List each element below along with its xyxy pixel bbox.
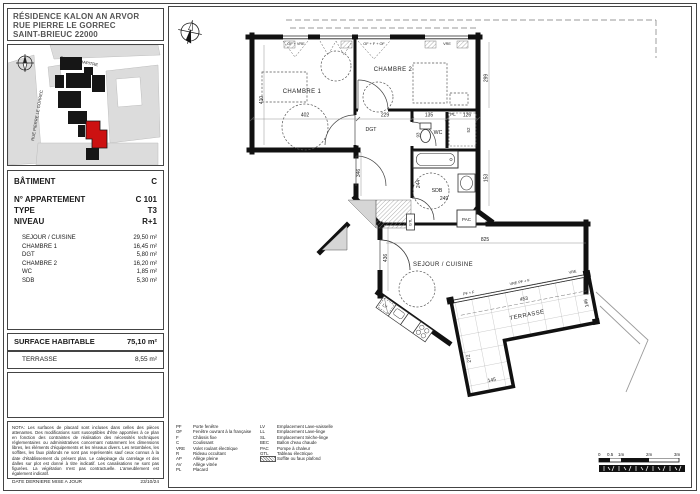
scale-1m: 1m bbox=[618, 452, 624, 457]
apartment-info-panel: BÂTIMENTC N° APPARTEMENTC 101 TYPET3 NIV… bbox=[7, 170, 164, 330]
nota-text: NOTA: Les surfaces de placard sont inclu… bbox=[12, 425, 159, 476]
type-label: TYPE bbox=[14, 205, 35, 216]
legend-label: Placard bbox=[193, 467, 208, 472]
sejour-circle bbox=[399, 271, 435, 307]
surface-label: SURFACE HABITABLE bbox=[14, 337, 95, 346]
legend-abbr: PL bbox=[176, 467, 193, 472]
room-name: DGT bbox=[22, 251, 35, 260]
room-area-row: SDB5,30 m² bbox=[14, 277, 157, 286]
empty-panel bbox=[7, 372, 164, 418]
date-value: 23/10/24 bbox=[140, 480, 159, 485]
chambre1-label: CHAMBRE 1 bbox=[283, 89, 322, 95]
room-area: 1,85 m² bbox=[137, 268, 157, 277]
room-name: CHAMBRE 1 bbox=[22, 243, 57, 252]
room-name: SDB bbox=[22, 277, 34, 286]
dgt-label: DGT bbox=[366, 127, 378, 133]
window-label: OF + VRE bbox=[287, 42, 305, 46]
room-area: 16,45 m² bbox=[133, 243, 157, 252]
room-area: 5,30 m² bbox=[137, 277, 157, 286]
gtl-label: GTL bbox=[409, 219, 413, 226]
dim: 52 bbox=[466, 127, 471, 133]
niveau-value: R+1 bbox=[142, 216, 157, 227]
project-title-block: RÉSIDENCE KALON AN ARVOR RUE PIERRE LE G… bbox=[7, 8, 164, 41]
room-area-row: SEJOUR / CUISINE29,50 m² bbox=[14, 234, 157, 243]
soffite-hatch-swatch bbox=[260, 456, 276, 462]
dim: 436 bbox=[383, 254, 389, 263]
legend-col-1: PFPorte fenêtre OFFenêtre ouvrant à la f… bbox=[176, 424, 256, 473]
soffite-hatch bbox=[322, 200, 411, 250]
dim: 825 bbox=[481, 237, 490, 243]
chambre1-furniture bbox=[262, 51, 351, 150]
residence-name: RÉSIDENCE KALON AN ARVOR bbox=[13, 12, 158, 21]
terrasse-label: TERRASSE bbox=[22, 356, 57, 363]
window-label: VRE PF + F bbox=[509, 278, 530, 286]
batiment-label: BÂTIMENT bbox=[14, 176, 55, 187]
dim: 93 bbox=[416, 132, 421, 138]
apartment-value: C 101 bbox=[136, 194, 157, 205]
compass-icon bbox=[176, 18, 204, 46]
dim: 299 bbox=[484, 74, 490, 83]
dim: 402 bbox=[301, 113, 310, 119]
apartment-label: N° APPARTEMENT bbox=[14, 194, 85, 205]
chambre2-label: CHAMBRE 2 bbox=[374, 67, 413, 73]
scale-bar-graphic bbox=[598, 458, 690, 478]
parcel bbox=[116, 77, 142, 107]
legend-label: Soffite ou faux plafond bbox=[277, 456, 321, 463]
dim: 249 bbox=[440, 196, 449, 202]
room-area: 16,20 m² bbox=[133, 260, 157, 269]
city-postcode: SAINT-BRIEUC 22000 bbox=[13, 30, 158, 39]
site-map: RUE DU CHAPITRE RUE PIERRE LE GORREC bbox=[7, 44, 164, 166]
batiment-value: C bbox=[151, 176, 157, 187]
room-area-row: CHAMBRE 216,20 m² bbox=[14, 260, 157, 269]
dim: 244 bbox=[416, 180, 422, 189]
sejour-label: SEJOUR / CUISINE bbox=[413, 262, 473, 268]
kitchen-counter: LV bbox=[376, 296, 433, 342]
room-area: 5,80 m² bbox=[137, 251, 157, 260]
room-area-row: WC1,85 m² bbox=[14, 268, 157, 277]
terrasse-value: 8,55 m² bbox=[135, 356, 157, 363]
scale-05: 0.5 bbox=[607, 452, 613, 457]
terrasse-panel: TERRASSE8,55 m² bbox=[7, 351, 164, 369]
room-area-row: CHAMBRE 116,45 m² bbox=[14, 243, 157, 252]
nota-panel: NOTA: Les surfaces de placard sont inclu… bbox=[7, 421, 164, 479]
wc-toilet bbox=[420, 123, 431, 143]
scale-2m: 2m bbox=[646, 452, 652, 457]
surface-value: 75,10 m² bbox=[127, 337, 157, 346]
wc-label: WC bbox=[434, 130, 443, 136]
scale-bar: 0 0.5 1m 2m 3m bbox=[598, 452, 690, 478]
neighbor-outline bbox=[596, 292, 648, 392]
room-name: CHAMBRE 2 bbox=[22, 260, 57, 269]
sdb-label: SDB bbox=[432, 188, 443, 194]
terrace: 453 TERRASSE 146 272 145 PF + F VRE PF +… bbox=[446, 267, 609, 396]
dim: 410 bbox=[259, 96, 265, 105]
surface-habitable-panel: SURFACE HABITABLE75,10 m² bbox=[7, 333, 164, 351]
dim: 229 bbox=[381, 113, 390, 119]
type-value: T3 bbox=[148, 205, 157, 216]
window-label: VRE bbox=[443, 42, 451, 46]
legend-col-2: LVEmplacement Lave-vaisselle LLEmplaceme… bbox=[260, 424, 360, 464]
pac-label: PAC bbox=[462, 217, 472, 222]
room-name: WC bbox=[22, 268, 32, 277]
window-label: VRE bbox=[568, 269, 577, 275]
site-map-drawing: RUE DU CHAPITRE RUE PIERRE LE GORREC bbox=[8, 45, 163, 165]
window-label: OF + F + OF bbox=[363, 42, 385, 46]
niveau-label: NIVEAU bbox=[14, 216, 44, 227]
room-name: SEJOUR / CUISINE bbox=[22, 234, 76, 243]
architect-stamp bbox=[599, 465, 685, 472]
scale-3m: 3m bbox=[674, 452, 680, 457]
dim: 126 bbox=[463, 113, 472, 119]
dim: 346 bbox=[356, 169, 362, 178]
street-address: RUE PIERRE LE GORREC bbox=[13, 21, 158, 30]
dim: 153 bbox=[484, 174, 490, 183]
floor-plan-drawing: LV 453 TERRASSE 146 272 145 PF + F VRE P… bbox=[168, 6, 692, 488]
room-area: 29,50 m² bbox=[133, 234, 157, 243]
dim: 135 bbox=[425, 113, 434, 119]
room-area-row: DGT5,80 m² bbox=[14, 251, 157, 260]
scale-0: 0 bbox=[598, 452, 601, 457]
pl-label: PL bbox=[450, 112, 456, 117]
floor-plan-page: RÉSIDENCE KALON AN ARVOR RUE PIERRE LE G… bbox=[0, 0, 700, 494]
date-label: DATE DERNIERE MISE A JOUR bbox=[12, 480, 82, 485]
window-label: PF + F bbox=[463, 290, 476, 296]
